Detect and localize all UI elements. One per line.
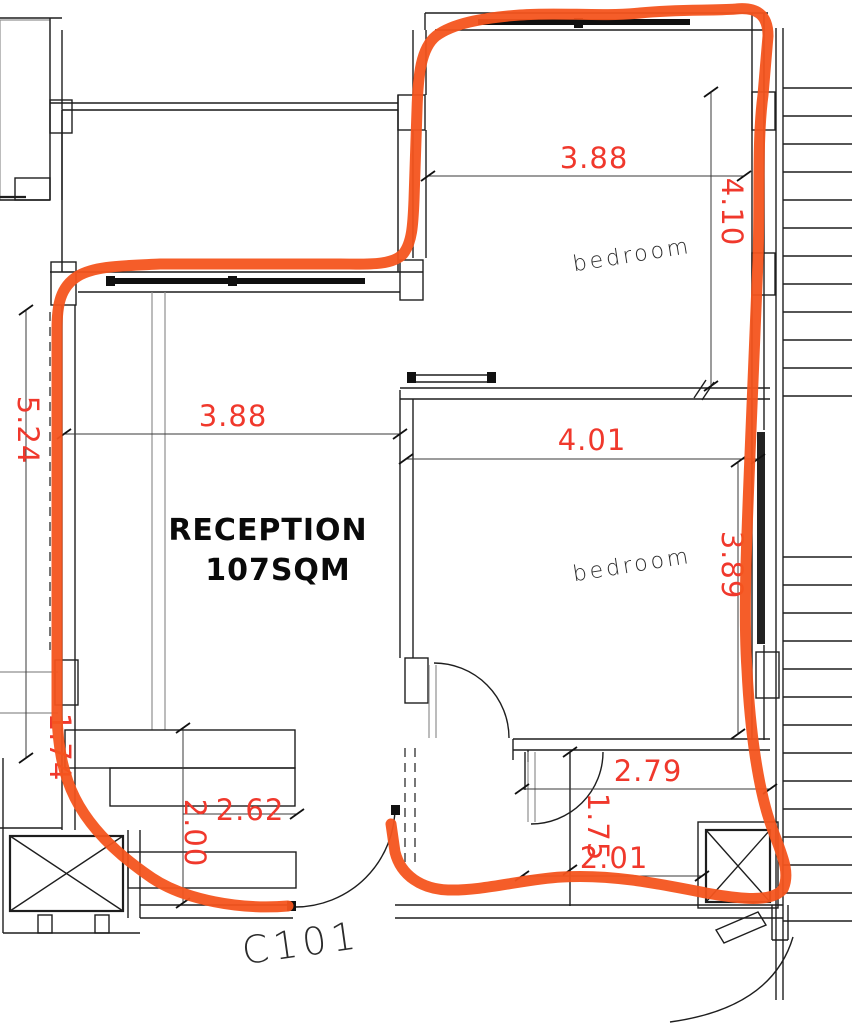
- dim-bedroom-top-depth: 4.10: [715, 178, 749, 247]
- floor-plan-image: 3.88 4.10 3.88 5.24 4.01 3.89 2.79 1.75 …: [0, 0, 852, 1024]
- terrace-window: [50, 272, 423, 292]
- unit-number-label: C101: [239, 913, 363, 973]
- dim-bedroom-bottom-width: 4.01: [558, 423, 627, 457]
- door-bottom-right: [670, 905, 793, 1022]
- reception-area-label: 107SQM: [205, 553, 351, 588]
- dim-reception-depth: 5.24: [11, 396, 45, 465]
- floor-plan-svg: 3.88 4.10 3.88 5.24 4.01 3.89 2.79 1.75 …: [0, 0, 852, 1024]
- reception-name-label: RECEPTION: [168, 513, 367, 548]
- dim-kitchen-width: 2.62: [216, 793, 285, 827]
- bedroom-bottom-label: bedroom: [571, 544, 693, 587]
- balcony-left-tiled: [0, 18, 62, 200]
- dim-reception-width: 3.88: [199, 399, 268, 433]
- dim-hall-width: 2.01: [580, 841, 649, 875]
- stairs: [776, 28, 852, 1000]
- bedroom-top-label: bedroom: [571, 234, 693, 277]
- dim-kitchen-depth: 2.00: [178, 799, 212, 868]
- dim-bedroom-top-width: 3.88: [560, 141, 629, 175]
- terrace-tiled: [50, 95, 398, 272]
- dim-closet-width: 2.79: [614, 754, 683, 788]
- walls: [0, 13, 783, 933]
- door-bedroom1: [407, 372, 509, 738]
